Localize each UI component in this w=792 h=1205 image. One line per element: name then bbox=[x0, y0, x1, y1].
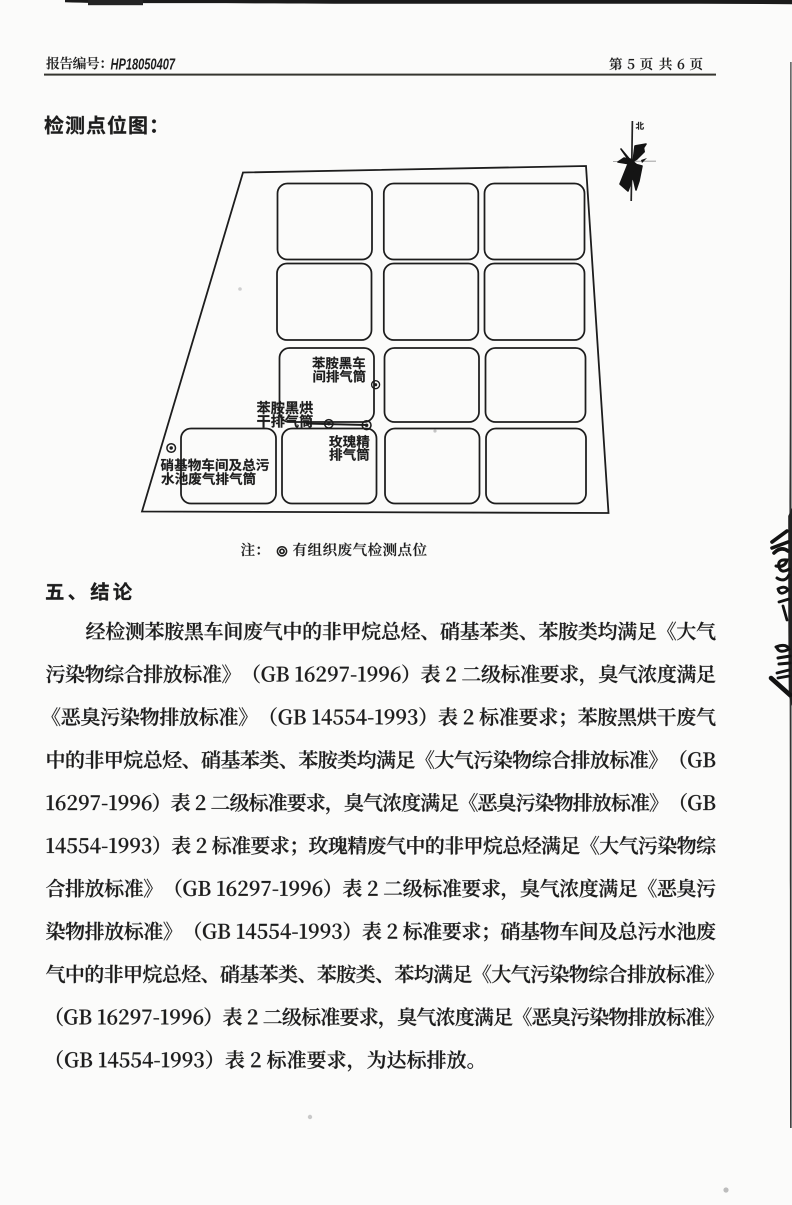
svg-text:HP18050407: HP18050407 bbox=[111, 56, 176, 73]
